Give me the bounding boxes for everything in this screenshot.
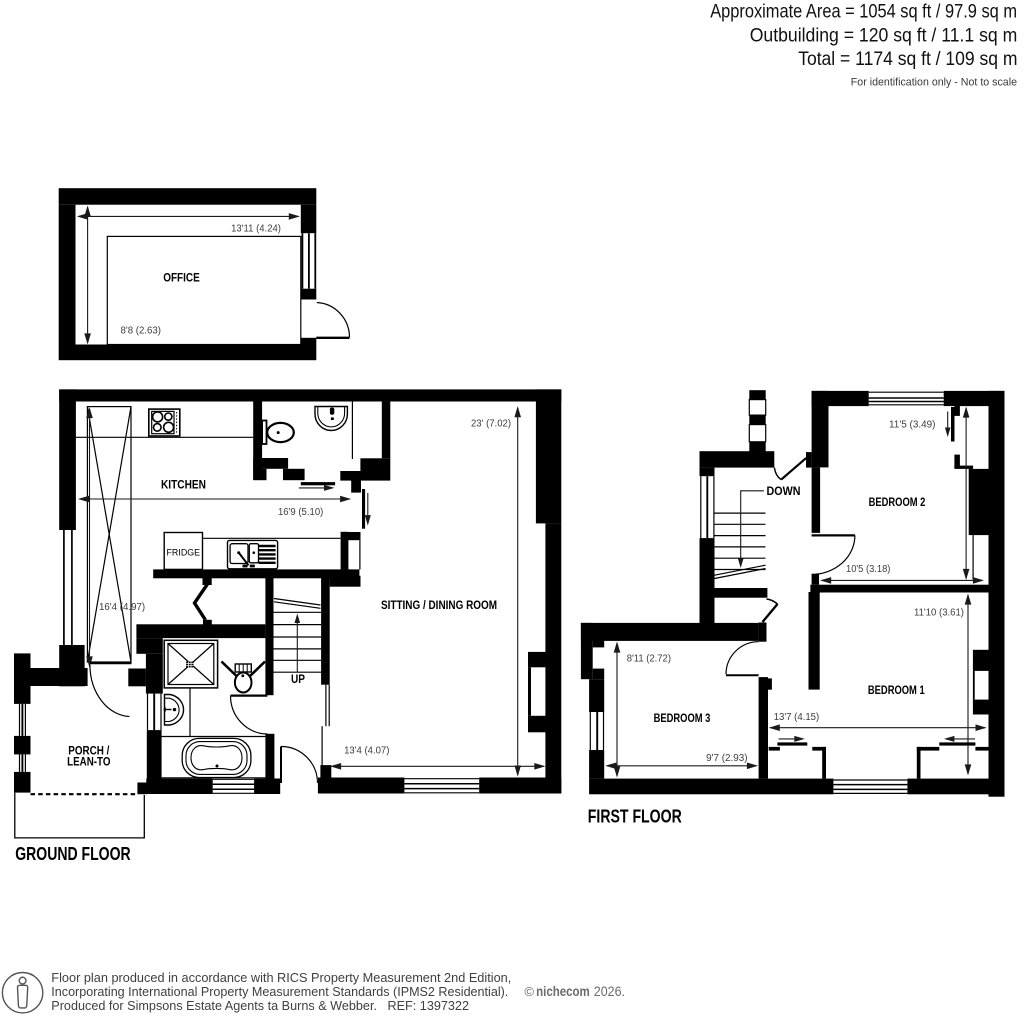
svg-text:Floor plan produced in accorda: Floor plan produced in accordance with R…	[51, 970, 511, 985]
svg-text:13'11 (4.24): 13'11 (4.24)	[231, 224, 281, 235]
svg-text:10'5 (3.18): 10'5 (3.18)	[846, 564, 890, 575]
svg-text:DOWN: DOWN	[767, 486, 801, 498]
svg-text:BEDROOM 2: BEDROOM 2	[869, 497, 926, 509]
svg-text:GROUND FLOOR: GROUND FLOOR	[15, 844, 131, 864]
svg-text:11'10 (3.61): 11'10 (3.61)	[914, 607, 964, 618]
svg-text:Outbuilding = 120 sq ft / 11.1: Outbuilding = 120 sq ft / 11.1 sq m	[750, 24, 1018, 46]
svg-text:2026.: 2026.	[594, 984, 625, 999]
svg-text:SITTING / DINING ROOM: SITTING / DINING ROOM	[381, 600, 497, 612]
svg-text:Total = 1174 sq ft / 109 sq m: Total = 1174 sq ft / 109 sq m	[798, 48, 1017, 70]
svg-text:FIRST FLOOR: FIRST FLOOR	[588, 807, 682, 827]
svg-text:11'5 (3.49): 11'5 (3.49)	[889, 419, 936, 430]
svg-text:nichecom: nichecom	[536, 984, 590, 999]
svg-text:8'8 (2.63): 8'8 (2.63)	[121, 325, 161, 336]
svg-text:13'4 (4.07): 13'4 (4.07)	[344, 746, 389, 757]
svg-text:For identification only - Not: For identification only - Not to scale	[851, 77, 1017, 89]
svg-text:16'4 (4.97): 16'4 (4.97)	[99, 602, 145, 613]
svg-text:LEAN-TO: LEAN-TO	[67, 757, 110, 769]
svg-text:BEDROOM 1: BEDROOM 1	[868, 685, 925, 697]
svg-text:BEDROOM 3: BEDROOM 3	[654, 713, 711, 725]
svg-text:13'7 (4.15): 13'7 (4.15)	[774, 712, 820, 723]
svg-text:©: ©	[524, 984, 534, 999]
svg-text:Incorporating International Pr: Incorporating International Property Mea…	[51, 984, 508, 999]
svg-text:Approximate Area = 1054 sq ft: Approximate Area = 1054 sq ft / 97.9 sq …	[710, 1, 1017, 23]
svg-text:OFFICE: OFFICE	[163, 272, 200, 284]
svg-text:8'11 (2.72): 8'11 (2.72)	[627, 654, 671, 665]
svg-text:Produced for Simpsons Estate A: Produced for Simpsons Estate Agents ta B…	[51, 998, 469, 1013]
svg-text:FRIDGE: FRIDGE	[167, 547, 201, 558]
svg-text:UP: UP	[291, 674, 305, 686]
svg-text:9'7 (2.93): 9'7 (2.93)	[706, 753, 747, 764]
svg-text:23' (7.02): 23' (7.02)	[471, 419, 511, 430]
svg-text:16'9 (5.10): 16'9 (5.10)	[278, 507, 323, 518]
svg-text:KITCHEN: KITCHEN	[161, 479, 206, 491]
